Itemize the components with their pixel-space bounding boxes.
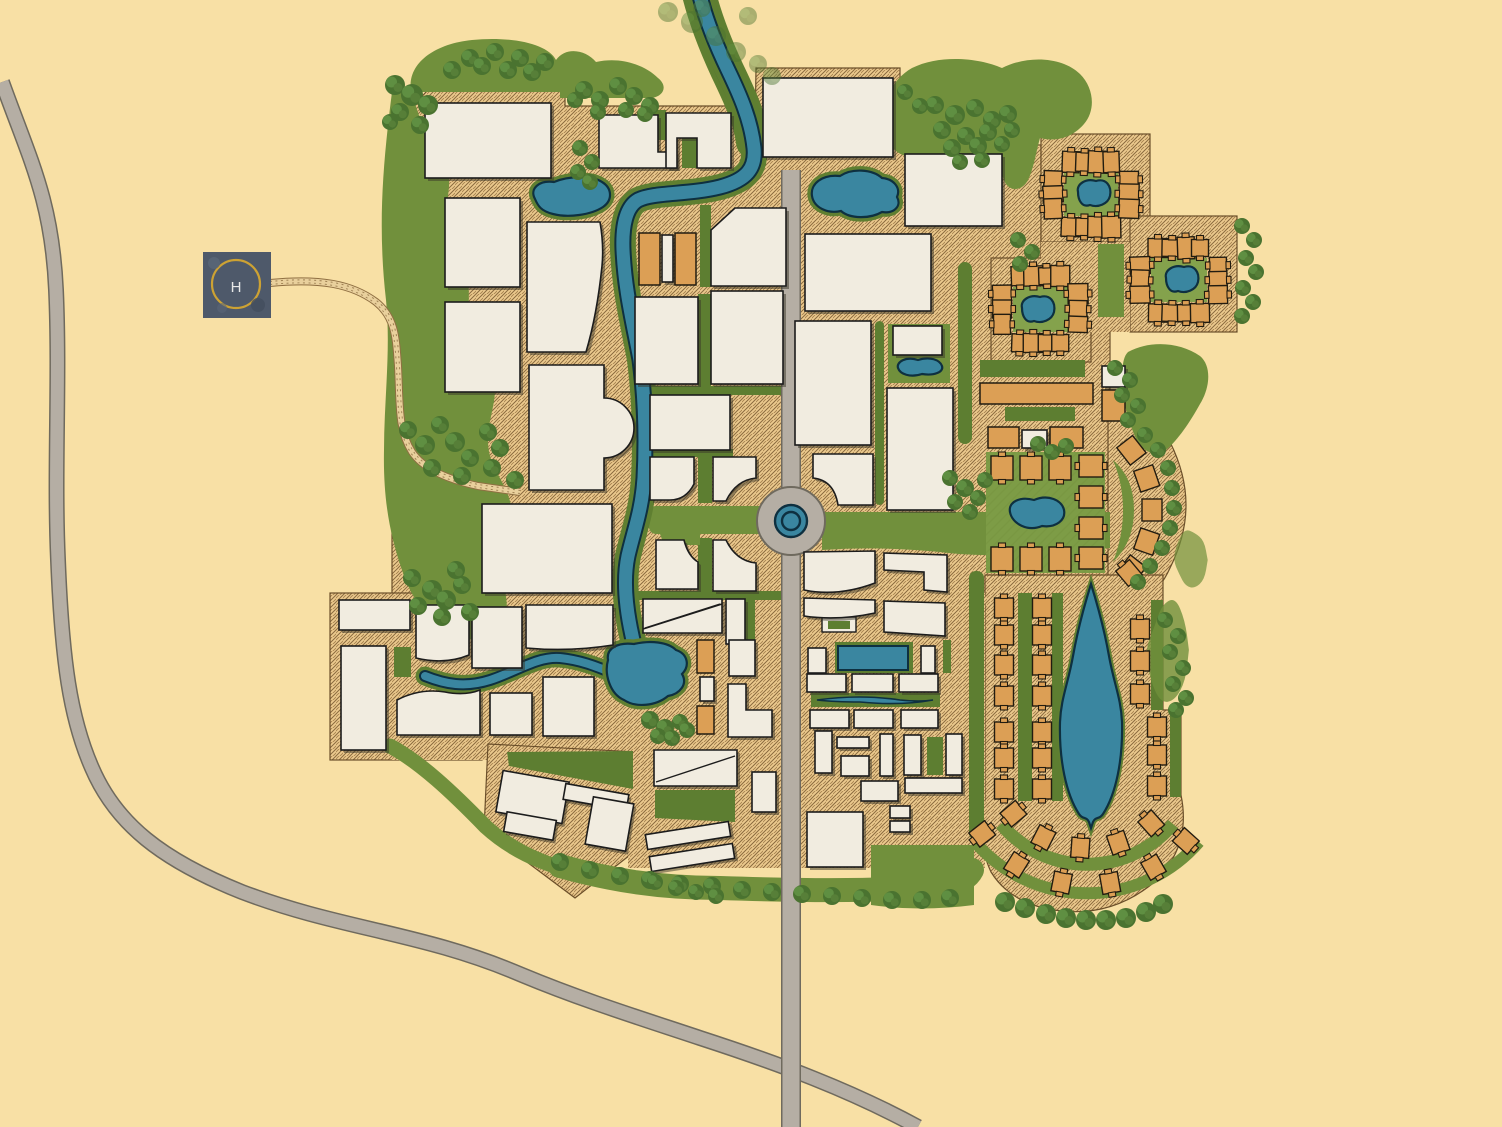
svg-text:H: H xyxy=(231,279,242,296)
